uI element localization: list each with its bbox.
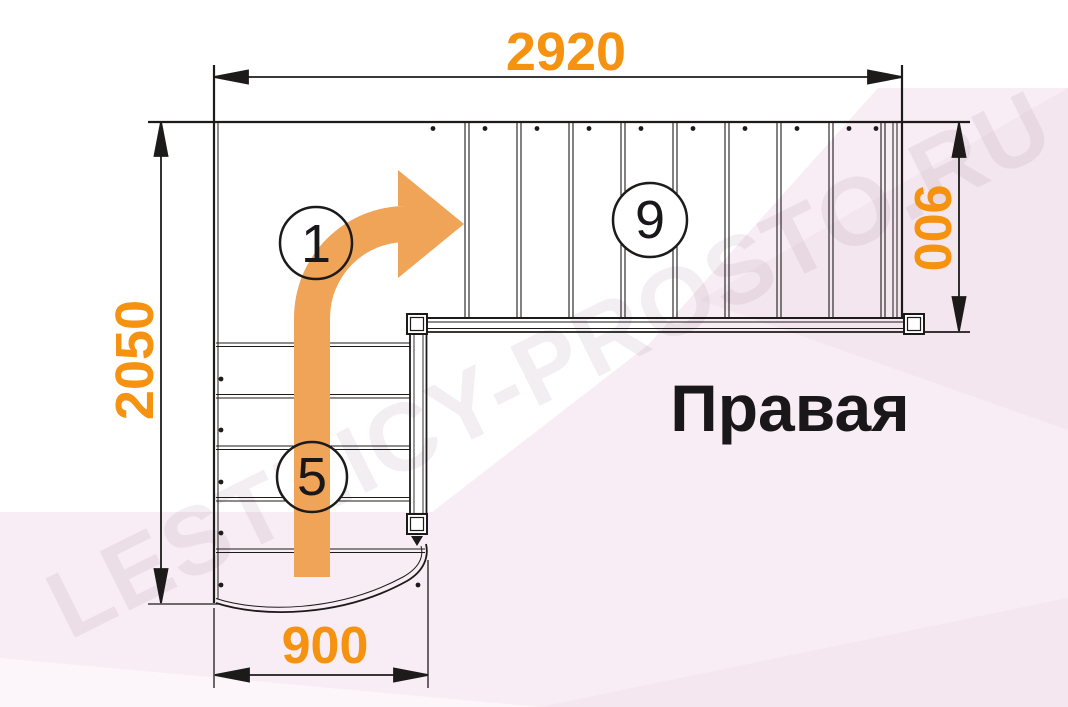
newel-posts	[407, 314, 924, 546]
dimension-bottom	[214, 560, 428, 688]
lower-flight-stringer	[410, 334, 427, 514]
dimension-left	[148, 122, 218, 604]
upper-flight-screw-dots	[431, 126, 879, 131]
staircase-plan-drawing	[0, 0, 1068, 707]
upper-stringer-beam	[415, 318, 970, 332]
stair-plan-diagram: LESTNICY-PROSTO.RU	[0, 0, 1068, 707]
plan-outline	[148, 65, 970, 603]
dimension-top	[214, 71, 902, 84]
dimension-right	[953, 123, 966, 331]
